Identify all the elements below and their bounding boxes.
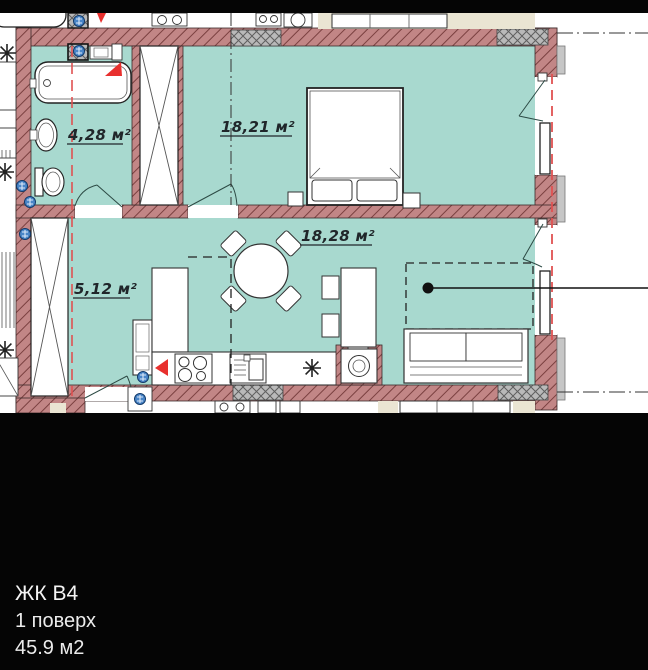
area-label-living: 18,28 м² bbox=[301, 227, 375, 245]
floor-plan: 4,28 м² 18,21 м² 18,28 м² 5,12 м² bbox=[0, 0, 648, 670]
valve-icon bbox=[138, 372, 149, 383]
listing-caption: ЖК В4 1 поверх 45.9 м2 bbox=[15, 580, 96, 662]
area-label-bathroom: 4,28 м² bbox=[67, 126, 131, 144]
kitchen-sink bbox=[230, 354, 266, 383]
pillow bbox=[312, 180, 352, 201]
bedroom-door-opening bbox=[188, 205, 238, 218]
wall-bedroom-left bbox=[178, 46, 183, 205]
shaft-column bbox=[140, 46, 178, 205]
bottom-black-panel bbox=[0, 413, 648, 670]
desk bbox=[341, 268, 376, 347]
wall-mid-seg1 bbox=[16, 205, 75, 218]
wall-left bbox=[16, 28, 31, 413]
desk-chair bbox=[322, 314, 339, 337]
window-bedroom bbox=[540, 123, 550, 174]
tall-cabinet bbox=[152, 268, 188, 352]
caption-complex-name: ЖК В4 bbox=[15, 580, 96, 608]
caption-floor: 1 поверх bbox=[15, 608, 96, 635]
hall-wardrobe bbox=[31, 218, 68, 396]
wall-bathroom-right bbox=[132, 46, 140, 205]
view-point-dot bbox=[423, 283, 434, 294]
sofa bbox=[404, 329, 528, 383]
bathroom-door-opening bbox=[75, 205, 122, 218]
window-living bbox=[540, 271, 550, 334]
top-black-bar bbox=[0, 0, 648, 13]
area-label-bedroom: 18,21 м² bbox=[221, 118, 295, 136]
desk-chair bbox=[322, 276, 339, 299]
area-label-hallway: 5,12 м² bbox=[74, 280, 137, 298]
fridge-snowflake-icon bbox=[303, 359, 321, 377]
bedroom-furniture bbox=[288, 88, 420, 208]
wall-mid-seg3 bbox=[238, 205, 557, 218]
caption-total-area: 45.9 м2 bbox=[15, 635, 96, 662]
pillow bbox=[357, 180, 397, 201]
nightstand bbox=[288, 192, 303, 206]
washing-machine bbox=[341, 349, 377, 383]
nightstand bbox=[403, 193, 420, 208]
wall-top bbox=[16, 28, 557, 46]
valve-icon bbox=[74, 46, 85, 57]
balcony-door1-opening bbox=[535, 77, 557, 123]
wall-mid-seg2 bbox=[122, 205, 188, 218]
floor-plan-screenshot: 4,28 м² 18,21 м² 18,28 м² 5,12 м² bbox=[0, 0, 648, 670]
